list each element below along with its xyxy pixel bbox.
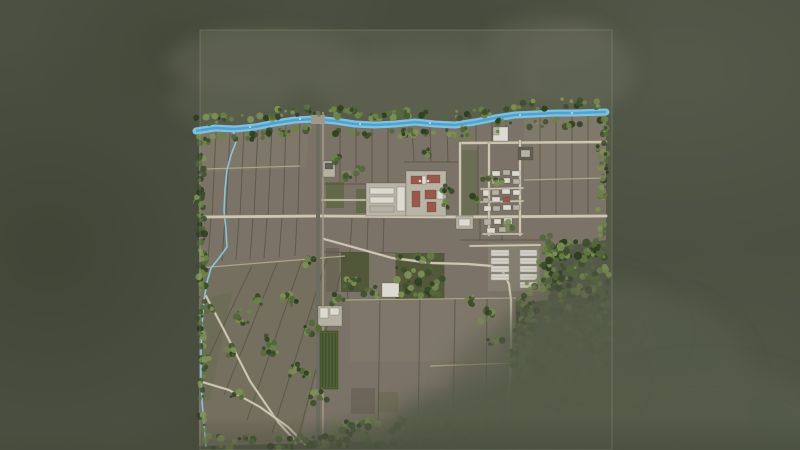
- village-house: [512, 171, 520, 176]
- building: [382, 283, 399, 297]
- village-house: [493, 206, 500, 211]
- village-house: [487, 228, 495, 233]
- village-house: [503, 197, 510, 202]
- village-house: [484, 219, 491, 225]
- village-house: [513, 179, 520, 184]
- game-map-screenshot: [0, 0, 800, 450]
- map-canvas[interactable]: [0, 0, 800, 450]
- village-house: [502, 189, 510, 194]
- village-house: [492, 171, 500, 176]
- building: [330, 308, 339, 315]
- building: [320, 308, 328, 318]
- village-house: [513, 190, 520, 195]
- village-house: [484, 206, 491, 211]
- village-house: [494, 219, 501, 224]
- village-house: [492, 190, 499, 195]
- building: [370, 197, 394, 203]
- building: [521, 150, 530, 157]
- field-parcel: [326, 182, 344, 208]
- silo: [419, 180, 422, 183]
- building: [425, 190, 436, 199]
- village-house: [492, 197, 500, 202]
- building: [370, 206, 394, 212]
- village-house: [483, 198, 489, 203]
- field-parcel: [326, 248, 339, 292]
- field-parcel: [378, 392, 398, 412]
- vineyard: [320, 331, 338, 389]
- silo: [427, 180, 430, 183]
- village-house: [503, 205, 511, 210]
- building: [397, 187, 405, 211]
- village-house: [499, 227, 506, 232]
- building: [370, 188, 394, 194]
- field-parcel: [351, 388, 375, 414]
- field-parcel: [462, 150, 478, 215]
- village-house: [483, 190, 489, 196]
- silo: [423, 180, 426, 183]
- village-house: [513, 205, 520, 210]
- building: [459, 219, 470, 226]
- building: [427, 202, 436, 212]
- building: [412, 191, 420, 207]
- building: [325, 163, 333, 169]
- village-house: [503, 170, 510, 175]
